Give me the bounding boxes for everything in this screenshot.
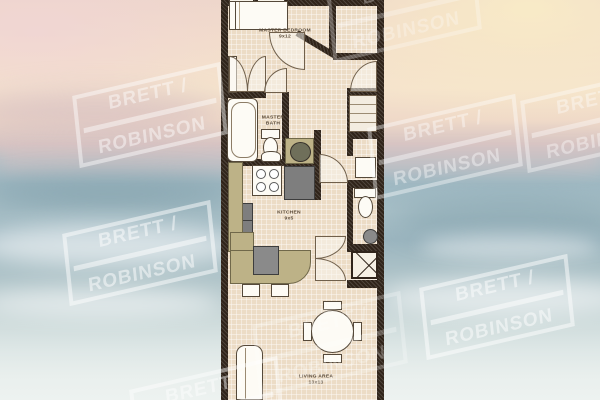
wall-entry-closet [333, 53, 384, 60]
room-name: LIVING AREA [299, 373, 334, 379]
dining-chair [323, 301, 342, 310]
wall-closet [347, 131, 384, 139]
surf-foam [420, 234, 600, 260]
wall-utility [347, 280, 384, 288]
bed [229, 1, 288, 30]
toilet-bowl [358, 196, 373, 218]
wall-right [377, 0, 384, 400]
room-dims: 9x5 [277, 215, 301, 221]
room-dims: 9x12 [259, 33, 311, 39]
room-dims: 13x13 [299, 379, 334, 385]
stove-burner [269, 182, 279, 192]
refrigerator [284, 166, 315, 200]
room-name: MASTER BATH [260, 114, 286, 126]
ac-closet [351, 251, 378, 279]
sofa-cushion-line [245, 348, 246, 399]
dining-table [311, 310, 354, 353]
wall-hall-bath [347, 180, 384, 188]
bar-stool [242, 284, 260, 297]
master-bath-label: MASTER BATH [260, 114, 286, 126]
master-bedroom-label: MASTER BEDROOM 9x12 [259, 27, 311, 39]
room-name: KITCHEN [277, 209, 301, 215]
bar-stool [271, 284, 289, 297]
sofa [236, 345, 263, 400]
bed-pillow-line [235, 2, 236, 29]
wall-left [221, 0, 228, 400]
utility-closet [355, 157, 376, 178]
stove-burner [256, 182, 266, 192]
wall-hall [347, 184, 353, 250]
dining-chair [353, 322, 362, 341]
dining-chair [303, 322, 312, 341]
hall-bath-sink [363, 229, 378, 244]
dining-chair [323, 354, 342, 363]
living-area-label: LIVING AREA 13x13 [299, 373, 334, 385]
bar-appliance [253, 246, 279, 275]
room-name: MASTER BEDROOM [259, 27, 311, 33]
floor-plan-listing-image: MASTER BEDROOM 9x12 MASTER BATH KITCHEN … [0, 0, 600, 400]
bath-sink [261, 151, 281, 162]
bathtub-basin [231, 102, 256, 158]
kitchen-label: KITCHEN 9x5 [277, 209, 301, 221]
kitchen-sink [290, 142, 311, 162]
floor-plan: MASTER BEDROOM 9x12 MASTER BATH KITCHEN … [221, 0, 384, 400]
entry-closet-shelves [349, 95, 377, 132]
wall-bedroom-closet [329, 0, 336, 55]
bed-sheet-line [239, 2, 240, 29]
stove [252, 165, 282, 196]
stove-burner [269, 169, 279, 179]
stove-burner [256, 169, 266, 179]
